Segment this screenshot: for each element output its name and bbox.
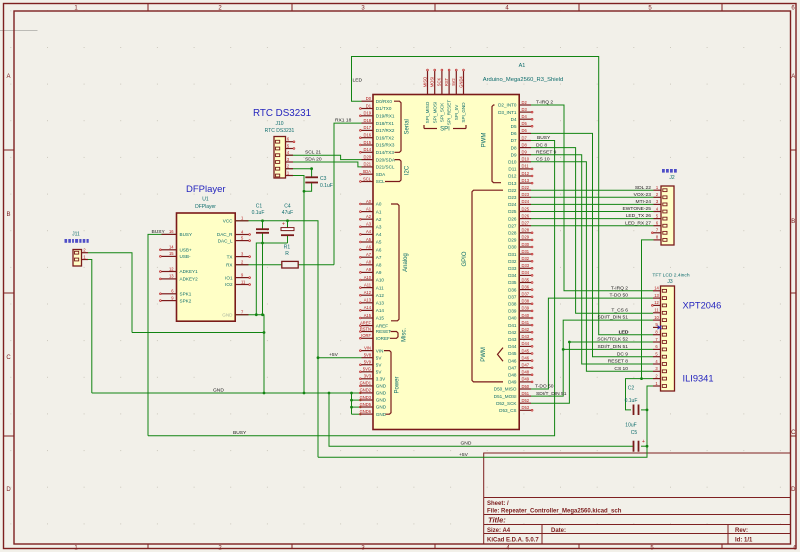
svg-text:GND2: GND2 [360,388,372,393]
svg-text:RST: RST [444,77,449,86]
svg-text:File: Repeater_Controller_Mega: File: Repeater_Controller_Mega2560.kicad… [487,509,622,515]
svg-text:A: A [6,74,10,80]
svg-text:D45: D45 [522,348,530,353]
svg-text:D28: D28 [508,231,517,236]
svg-text:SDL 22: SDL 22 [635,185,651,191]
svg-text:GND: GND [376,398,387,403]
svg-text:MOSI: MOSI [430,77,435,87]
svg-text:D6: D6 [511,131,517,136]
svg-text:A: A [791,74,795,80]
svg-text:IORF: IORF [361,333,371,338]
svg-text:D9: D9 [522,150,528,155]
svg-text:Size: A4: Size: A4 [487,528,511,534]
svg-text:T-IRQ 2: T-IRQ 2 [611,285,628,291]
svg-text:CS 10: CS 10 [614,366,628,372]
svg-text:D4: D4 [522,114,528,119]
svg-text:D50: D50 [522,384,530,389]
svg-text:TFT LCD 2.4inch: TFT LCD 2.4inch [652,272,689,278]
svg-text:IOREF: IOREF [376,336,390,341]
svg-text:10: 10 [654,315,659,320]
svg-text:RTC DS3231: RTC DS3231 [265,128,295,134]
svg-text:A7: A7 [366,252,372,257]
svg-text:D1: D1 [366,103,372,108]
svg-text:TX: TX [227,254,233,259]
svg-text:GND: GND [376,384,387,389]
svg-text:D27: D27 [522,221,530,226]
svg-text:D39: D39 [522,306,530,311]
svg-text:D19: D19 [363,111,371,116]
svg-text:VIN: VIN [364,345,371,350]
svg-text:DC 8: DC 8 [536,142,547,148]
svg-text:USB+: USB+ [180,248,192,253]
svg-text:A1: A1 [519,63,526,69]
svg-text:D18/TX1: D18/TX1 [376,121,395,126]
svg-text:5V: 5V [376,355,383,360]
svg-text:D15/RX3: D15/RX3 [376,143,395,148]
svg-text:D41: D41 [508,323,517,328]
svg-text:ADKEY2: ADKEY2 [180,277,199,282]
svg-text:A0: A0 [376,202,382,207]
svg-text:R1: R1 [284,245,291,251]
svg-text:U1: U1 [202,197,209,203]
svg-text:PWM: PWM [482,133,488,148]
svg-text:D24: D24 [522,199,530,204]
svg-text:D4: D4 [511,117,517,122]
svg-text:GND: GND [461,441,472,447]
svg-text:BUSY: BUSY [537,135,551,141]
svg-text:D: D [791,487,796,493]
svg-text:GND1: GND1 [360,381,372,386]
svg-text:11: 11 [654,308,659,313]
svg-text:KiCad E.D.A. 5.0.7: KiCad E.D.A. 5.0.7 [487,538,539,544]
svg-text:A0: A0 [366,199,372,204]
svg-text:D46: D46 [522,355,530,360]
svg-text:Misc.: Misc. [402,328,408,342]
svg-text:J2: J2 [669,175,675,181]
svg-text:D16/TX2: D16/TX2 [376,135,395,140]
svg-text:14: 14 [169,245,174,250]
svg-text:+5V: +5V [459,452,469,458]
svg-text:T_CS 6: T_CS 6 [611,307,628,313]
svg-text:A6: A6 [366,244,372,249]
svg-text:D36: D36 [508,287,517,292]
svg-text:A5: A5 [376,240,382,245]
svg-text:5VG: 5VG [363,367,371,372]
svg-text:47uF: 47uF [282,210,293,216]
svg-text:D21: D21 [363,162,371,167]
svg-text:15: 15 [169,251,174,256]
svg-text:SDA: SDA [363,169,372,174]
svg-text:C: C [6,355,11,361]
svg-text:SPI_GND: SPI_GND [461,102,466,123]
svg-text:SDI/T_DIN 51: SDI/T_DIN 51 [536,391,567,397]
svg-text:D32: D32 [522,256,530,261]
svg-text:D45: D45 [508,351,517,356]
svg-text:D37: D37 [508,294,517,299]
svg-text:D26: D26 [522,213,530,218]
svg-text:D33: D33 [522,263,530,268]
svg-text:C5: C5 [631,430,638,436]
svg-text:D48: D48 [522,370,530,375]
svg-text:A5: A5 [366,237,372,242]
svg-text:16: 16 [169,229,174,234]
svg-text:T-DO 50: T-DO 50 [535,384,554,390]
svg-text:D: D [6,487,11,493]
svg-text:D28: D28 [522,228,530,233]
svg-text:GND3: GND3 [360,395,372,400]
svg-text:J10: J10 [275,121,283,127]
svg-text:D22: D22 [508,188,517,193]
svg-text:IO2: IO2 [225,282,233,287]
svg-text:D31: D31 [508,252,517,257]
svg-text:D9: D9 [511,152,517,157]
svg-text:D0: D0 [366,96,372,101]
svg-text:D5: D5 [522,121,528,126]
svg-text:D11: D11 [522,164,530,169]
svg-text:GND: GND [376,405,387,410]
svg-text:+: + [642,439,645,445]
svg-text:D16: D16 [363,133,371,138]
svg-text:D23: D23 [508,195,517,200]
svg-text:D24: D24 [508,202,517,207]
svg-text:D44: D44 [522,341,530,346]
svg-text:3V3: 3V3 [364,374,372,379]
svg-text:J11: J11 [72,232,80,238]
svg-text:D5: D5 [511,124,517,129]
svg-text:PWM: PWM [481,347,487,362]
svg-text:D27: D27 [508,223,517,228]
svg-text:EWTONE-25: EWTONE-25 [623,206,652,212]
svg-text:DFPlayer: DFPlayer [195,204,216,210]
svg-text:D17/RX2: D17/RX2 [376,128,395,133]
svg-text:A11: A11 [376,285,384,290]
svg-text:BUSY: BUSY [152,229,166,235]
svg-text:Serial: Serial [405,119,411,134]
svg-text:SCL 21: SCL 21 [305,150,321,156]
svg-text:SPI_RESET: SPI_RESET [447,100,452,125]
svg-text:D0/RX0: D0/RX0 [376,99,393,104]
svg-text:RESET: RESET [376,329,392,334]
svg-text:A15: A15 [364,313,372,318]
svg-text:3.3V: 3.3V [376,377,386,382]
svg-text:D6: D6 [522,128,528,133]
svg-text:A9: A9 [376,270,382,275]
svg-text:IO1: IO1 [225,275,233,280]
svg-text:D17: D17 [363,125,371,130]
svg-text:SCK: SCK [437,78,442,87]
svg-text:SPK2: SPK2 [180,298,192,303]
svg-text:Rev:: Rev: [735,528,748,534]
svg-text:SCL: SCL [376,179,385,184]
svg-text:D22: D22 [522,185,530,190]
svg-text:D47: D47 [508,365,517,370]
svg-text:D47: D47 [522,363,530,368]
svg-text:SDI/T_DIN 51: SDI/T_DIN 51 [598,315,629,321]
svg-text:D48: D48 [508,373,517,378]
svg-text:SPK1: SPK1 [180,292,192,297]
svg-text:11: 11 [241,279,246,284]
svg-text:A4: A4 [376,232,382,237]
svg-text:D13: D13 [508,181,517,186]
svg-text:A12: A12 [364,290,372,295]
svg-text:A2: A2 [366,214,372,219]
svg-text:D38: D38 [508,302,517,307]
svg-text:5V: 5V [376,370,383,375]
svg-text:D14/TX3: D14/TX3 [376,150,395,155]
svg-text:A14: A14 [376,308,385,313]
svg-text:GPIO: GPIO [462,251,468,266]
svg-text:D53: D53 [522,405,530,410]
svg-text:A3: A3 [366,222,372,227]
svg-text:R: R [285,251,289,257]
svg-text:D41: D41 [522,320,530,325]
svg-text:D2: D2 [522,100,528,105]
svg-text:D40: D40 [508,316,517,321]
svg-text:RESET 8: RESET 8 [608,359,629,365]
svg-text:DAC_R: DAC_R [217,232,233,237]
svg-text:D21/SCL: D21/SCL [376,165,395,170]
svg-text:+: + [282,222,285,228]
svg-text:C3: C3 [320,176,327,182]
svg-text:D52_SCK: D52_SCK [496,401,517,406]
svg-text:D36: D36 [522,284,530,289]
svg-text:VCC: VCC [223,219,233,224]
svg-text:5V: 5V [376,362,383,367]
svg-text:A2: A2 [376,217,382,222]
svg-text:D39: D39 [508,309,517,314]
svg-text:12: 12 [654,300,659,305]
svg-text:D31: D31 [522,249,530,254]
svg-text:RX1 18: RX1 18 [335,118,352,124]
svg-text:A13: A13 [364,298,372,303]
svg-text:A1: A1 [366,206,372,211]
svg-text:5V2: 5V2 [451,78,456,86]
svg-text:D20/SDA: D20/SDA [376,157,396,162]
svg-text:RESET 9: RESET 9 [536,149,557,155]
svg-text:D46: D46 [508,358,517,363]
svg-text:LED_RX 27: LED_RX 27 [625,220,651,226]
svg-text:D32: D32 [508,259,517,264]
svg-text:D15: D15 [363,140,371,145]
svg-text:A6: A6 [376,247,382,252]
svg-text:A9: A9 [366,267,372,272]
svg-text:D43: D43 [522,334,530,339]
svg-text:GND: GND [222,312,233,317]
svg-text:D26: D26 [508,216,517,221]
svg-text:D52: D52 [522,398,530,403]
svg-text:D35: D35 [508,280,517,285]
svg-text:ADKEY1: ADKEY1 [180,269,199,274]
svg-text:A3: A3 [376,225,382,230]
svg-text:D40: D40 [522,313,530,318]
svg-text:D29: D29 [508,238,517,243]
svg-text:SCK/TCLK 52: SCK/TCLK 52 [597,337,628,343]
svg-text:LED_TX 26: LED_TX 26 [626,213,652,219]
svg-text:XPT2046: XPT2046 [683,301,722,311]
svg-text:D10: D10 [508,160,517,165]
svg-text:C1: C1 [256,204,263,210]
svg-text:RSTN: RSTN [360,326,371,331]
svg-text:D42: D42 [522,327,530,332]
svg-text:5V8: 5V8 [364,353,372,358]
svg-text:Date:: Date: [551,528,566,534]
svg-text:12: 12 [169,266,174,271]
svg-text:A14: A14 [364,305,372,310]
svg-text:D49: D49 [522,377,530,382]
svg-text:D30: D30 [508,245,517,250]
svg-text:GND: GND [376,412,387,417]
svg-text:USB-: USB- [180,254,191,259]
svg-text:BUSY: BUSY [233,430,247,436]
svg-text:D25: D25 [522,206,530,211]
svg-text:D53_CS: D53_CS [499,408,516,413]
svg-text:A11: A11 [364,282,372,287]
svg-text:LED: LED [353,78,363,84]
svg-text:D8: D8 [522,142,528,147]
svg-text:D12: D12 [522,171,530,176]
svg-text:D8: D8 [511,145,517,150]
svg-text:MTI-24: MTI-24 [636,199,652,205]
svg-text:MISO: MISO [422,77,427,87]
svg-text:0.1uF: 0.1uF [625,398,638,404]
svg-text:GND5: GND5 [360,402,372,407]
svg-text:D18: D18 [363,118,371,123]
svg-text:A10: A10 [364,275,372,280]
svg-text:I2C: I2C [405,165,411,175]
svg-text:D13: D13 [522,178,530,183]
svg-text:SPI_MOSI: SPI_MOSI [432,102,437,124]
svg-text:D44: D44 [508,344,517,349]
svg-text:GND: GND [376,391,387,396]
svg-text:BUSY: BUSY [180,232,193,237]
svg-text:RTC DS3231: RTC DS3231 [253,108,311,119]
svg-text:A15: A15 [376,316,385,321]
svg-text:A12: A12 [376,293,385,298]
svg-text:C: C [791,430,796,436]
svg-text:D29: D29 [522,235,530,240]
svg-text:Power: Power [395,376,401,393]
svg-text:A1: A1 [376,209,382,214]
svg-text:B: B [6,212,10,218]
svg-text:D3_INT1: D3_INT1 [498,110,517,115]
svg-text:RX: RX [226,262,232,267]
svg-text:SPI: SPI [440,127,450,133]
svg-text:ILI9341: ILI9341 [683,374,714,384]
svg-text:A13: A13 [376,301,385,306]
svg-text:D43: D43 [508,337,517,342]
svg-text:10uF: 10uF [625,423,636,429]
svg-text:Id: 1/1: Id: 1/1 [735,538,753,544]
svg-text:D42: D42 [508,330,517,335]
svg-text:VOX-23: VOX-23 [634,192,652,198]
svg-text:D33: D33 [508,266,517,271]
svg-text:GND4: GND4 [458,76,463,88]
svg-text:SPI_SCK: SPI_SCK [440,102,445,122]
svg-text:D37: D37 [522,292,530,297]
svg-text:D12: D12 [508,174,517,179]
svg-text:13: 13 [169,274,174,279]
svg-text:SDA: SDA [376,172,386,177]
svg-text:GND: GND [213,387,224,393]
svg-text:D1/TX0: D1/TX0 [376,106,392,111]
svg-text:CS 10: CS 10 [536,157,550,163]
svg-text:DFPlayer: DFPlayer [186,184,226,195]
svg-text:SCL: SCL [363,176,372,181]
svg-text:D34: D34 [508,273,517,278]
svg-text:D38: D38 [522,299,530,304]
svg-text:D7: D7 [511,138,517,143]
svg-text:T-IRQ 2: T-IRQ 2 [536,100,553,106]
svg-text:14: 14 [654,286,659,291]
svg-text:D7: D7 [522,135,528,140]
svg-text:D2_INT0: D2_INT0 [498,103,517,108]
svg-text:D11: D11 [508,167,517,172]
svg-text:Title:: Title: [488,516,506,525]
svg-text:D3: D3 [522,107,528,112]
svg-text:DAC_L: DAC_L [218,238,233,243]
svg-text:A4: A4 [366,229,372,234]
svg-text:C4: C4 [284,204,291,210]
svg-text:Arduino_Mega2560_R3_Shield: Arduino_Mega2560_R3_Shield [483,77,564,83]
svg-text:T-DO 50: T-DO 50 [610,293,629,299]
svg-text:DC 9: DC 9 [617,351,628,357]
svg-text:D20: D20 [363,154,371,159]
svg-text:C2: C2 [628,386,635,392]
svg-text:SDA 20: SDA 20 [305,156,322,162]
svg-text:J3: J3 [667,279,673,285]
svg-text:GND6: GND6 [360,409,372,414]
svg-text:AREF: AREF [376,323,388,328]
svg-text:D19/RX1: D19/RX1 [376,114,395,119]
svg-text:SPI_5V: SPI_5V [454,104,459,121]
svg-text:LED: LED [619,329,629,335]
svg-text:VIN: VIN [376,348,384,353]
svg-text:D25: D25 [508,209,517,214]
svg-text:0.1uF: 0.1uF [320,183,333,189]
svg-text:D49: D49 [508,380,517,385]
svg-text:D10: D10 [522,157,530,162]
svg-text:0.1uF: 0.1uF [252,210,265,216]
svg-text:A7: A7 [376,255,382,260]
svg-text:SPI_MISO: SPI_MISO [425,101,430,123]
svg-text:AREF: AREF [360,320,371,325]
svg-text:+5V: +5V [329,352,339,358]
svg-text:D30: D30 [522,242,530,247]
svg-text:SDI/T_DIN 51: SDI/T_DIN 51 [598,344,629,350]
svg-text:A8: A8 [376,263,382,268]
svg-text:D23: D23 [522,192,530,197]
svg-text:Sheet: /: Sheet: / [487,501,509,507]
svg-text:D34: D34 [522,270,530,275]
svg-text:5V9: 5V9 [364,360,372,365]
svg-text:13: 13 [654,293,659,298]
svg-text:A8: A8 [366,260,372,265]
svg-text:D35: D35 [522,277,530,282]
svg-text:B: B [791,219,795,225]
svg-text:D50_MISO: D50_MISO [494,387,517,392]
svg-text:A10: A10 [376,278,385,283]
svg-text:D14: D14 [363,147,371,152]
svg-text:D51_MOSI: D51_MOSI [494,394,517,399]
svg-text:D51: D51 [522,391,530,396]
svg-text:Analog: Analog [403,253,409,272]
